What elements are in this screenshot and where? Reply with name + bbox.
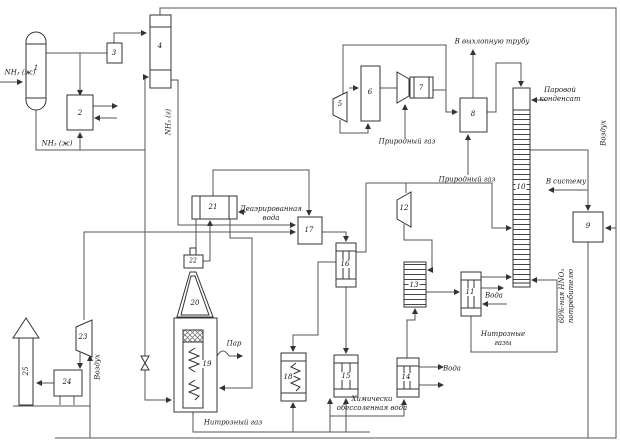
stream-label-natural-gas-turbine: Природный газ — [379, 137, 436, 146]
stream-label-acid-product: 60%-ная HNO₃ потребителю — [558, 269, 576, 323]
pipe-22-to-21 — [203, 221, 210, 261]
process-flow-diagram: 1 2 3 4 5 6 7 8 9 10 11 12 13 14 15 16 1… — [0, 0, 620, 442]
stream-label-air-right: Воздух — [599, 120, 608, 146]
stream-label-nh3-gas: NH₃ (г) — [164, 109, 173, 135]
stack-arrow-tip — [13, 318, 39, 338]
equipment-number-20: 20 — [190, 299, 201, 307]
stream-label-water-absorber: Вода — [485, 291, 503, 300]
demi-water-line2: обессоленная вода — [337, 404, 407, 413]
equipment-number-4: 4 — [157, 42, 163, 50]
nitrous-gases-line2: газы — [481, 339, 525, 348]
stream-label-steam-condensate: Паровой конденсат — [540, 86, 581, 104]
equipment-number-22: 22 — [188, 258, 198, 265]
stream-label-exhaust-stack: В выхлопную трубу — [455, 37, 530, 46]
stream-label-demi-water: Химически обессоленная вода — [337, 395, 407, 413]
pipe-boiler-water-down — [220, 219, 252, 388]
stream-label-nh3-liquid-inlet: NH₃ (ж) — [5, 68, 36, 77]
demi-water-line1: Химически — [337, 395, 407, 404]
acid-product-line1: 60%-ная HNO₃ — [558, 269, 567, 323]
stream-label-steam: Пар — [227, 339, 242, 348]
equipment-number-21: 21 — [208, 203, 219, 211]
equipment-number-25: 25 — [22, 366, 30, 377]
turbine-7-fan — [397, 72, 409, 103]
equipment-number-16: 16 — [340, 260, 351, 268]
equipment-number-15: 15 — [341, 372, 352, 380]
pipe-valve-to-reactor — [145, 370, 171, 400]
stream-label-to-system: В систему — [546, 177, 586, 186]
pipe-to-absorber-left — [366, 183, 511, 228]
equipment-number-23: 23 — [78, 333, 89, 341]
pipe-3-to-4 — [114, 33, 146, 43]
equipment-number-5: 5 — [337, 100, 343, 108]
pipe-16-tailgas-up — [356, 183, 366, 252]
equipment-number-14: 14 — [401, 373, 412, 381]
filter-22 — [190, 248, 196, 255]
equipment-number-2: 2 — [77, 109, 83, 117]
pipe-7-to-8 — [433, 90, 457, 112]
equipment-number-18: 18 — [283, 373, 294, 381]
deaerated-water-line1: Деаэрированная — [240, 205, 302, 214]
stream-label-deaerated-water: Деаэрированная вода — [240, 205, 302, 223]
equipment-number-13: 13 — [409, 281, 420, 289]
acid-product-line2: потребителю — [567, 269, 576, 323]
equipment-number-24: 24 — [62, 378, 73, 386]
nitrous-gases-line1: Нитрозные — [481, 330, 525, 339]
deaerated-water-line2: вода — [240, 214, 302, 223]
stream-label-natural-gas-heater: Природный газ — [439, 175, 496, 184]
equipment-number-11: 11 — [465, 288, 476, 296]
stream-label-nitrous-gases: Нитрозные газы — [481, 330, 525, 348]
pipe-16-to-18 — [293, 262, 336, 351]
equipment-number-8: 8 — [470, 110, 476, 118]
equipment-number-10: 10 — [516, 183, 527, 191]
equipment-number-12: 12 — [399, 204, 410, 212]
stream-label-air-left: Воздух — [93, 354, 102, 380]
equipment-number-9: 9 — [585, 222, 591, 230]
steam-condensate-line1: Паровой — [540, 86, 581, 95]
column-4 — [150, 15, 171, 88]
equipment-number-19: 19 — [202, 360, 213, 368]
equipment-number-7: 7 — [418, 84, 424, 92]
valve-icon — [141, 356, 149, 370]
pipe-14-to-13 — [407, 309, 415, 358]
stream-label-nh3-liquid-bottom: NH₃ (ж) — [42, 139, 73, 148]
stream-label-nitrous-gas: Нитрозный газ — [204, 418, 262, 427]
equipment-number-3: 3 — [111, 49, 117, 57]
pipe-17-to-16 — [322, 232, 346, 241]
equipment-number-6: 6 — [367, 88, 373, 96]
steam-condensate-line2: конденсат — [540, 95, 581, 104]
equipment-number-17: 17 — [304, 226, 315, 234]
pipe-5-bottom-6 — [340, 120, 368, 133]
stream-label-water-cooler: Вода — [443, 364, 461, 373]
